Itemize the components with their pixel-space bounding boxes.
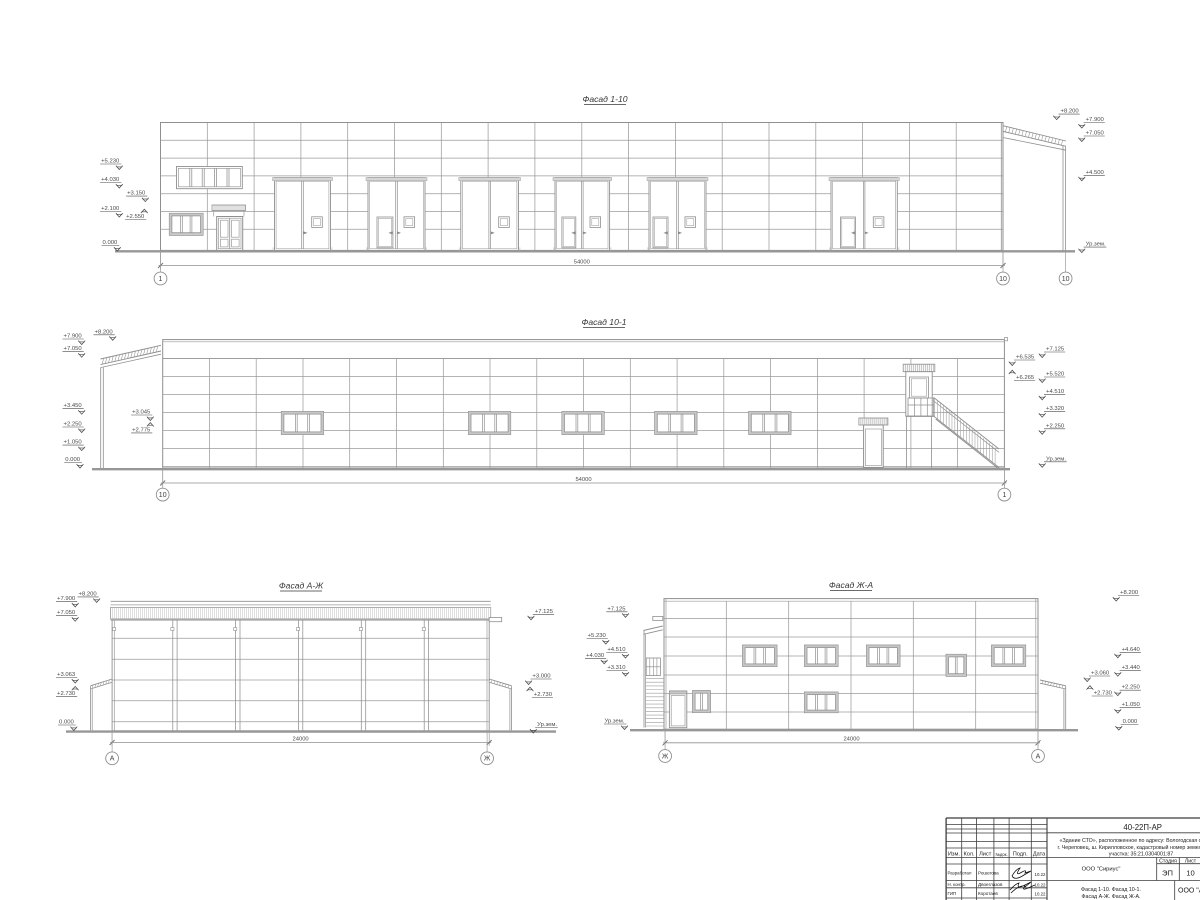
svg-text:+5.520: +5.520 (1046, 372, 1065, 378)
svg-text:+2.250: +2.250 (1046, 423, 1065, 429)
svg-text:10: 10 (1062, 276, 1070, 283)
svg-text:Ур.зем.: Ур.зем. (1086, 242, 1106, 248)
svg-text:+6.265: +6.265 (1016, 375, 1035, 381)
svg-text:0.000: 0.000 (65, 457, 80, 463)
svg-text:0.000: 0.000 (1123, 719, 1138, 725)
svg-text:+8.200: +8.200 (95, 329, 114, 335)
svg-text:+7.125: +7.125 (1046, 347, 1065, 353)
svg-text:Фасад А-Ж: Фасад А-Ж (279, 581, 324, 591)
svg-text:+2.100: +2.100 (101, 206, 120, 212)
svg-text:54000: 54000 (574, 259, 590, 265)
svg-text:+3.320: +3.320 (1046, 406, 1065, 412)
svg-text:ГИП: ГИП (948, 891, 957, 896)
svg-text:+7.125: +7.125 (535, 609, 554, 615)
svg-text:Рошегова: Рошегова (978, 871, 999, 876)
svg-text:Двоеглазов: Двоеглазов (978, 882, 1003, 887)
svg-text:+8.200: +8.200 (1120, 590, 1139, 596)
svg-text:0.000: 0.000 (59, 720, 74, 726)
svg-text:+3.045: +3.045 (132, 410, 151, 416)
svg-text:+2.250: +2.250 (64, 422, 83, 428)
svg-text:+4.510: +4.510 (1046, 389, 1065, 395)
svg-text:+4.030: +4.030 (586, 653, 605, 659)
svg-text:+4.510: +4.510 (607, 647, 626, 653)
svg-text:54000: 54000 (575, 477, 591, 483)
svg-text:+7.900: +7.900 (64, 334, 83, 340)
svg-text:«Здание СТО», расположенное по: «Здание СТО», расположенное по адресу: В… (1060, 838, 1200, 844)
svg-text:+1.050: +1.050 (64, 440, 83, 446)
svg-text:+4.500: +4.500 (1086, 170, 1105, 176)
svg-text:+7.050: +7.050 (1086, 131, 1105, 137)
svg-text:ООО "Ави: ООО "Ави (1178, 888, 1200, 895)
svg-text:Н. контр.: Н. контр. (948, 882, 966, 887)
svg-text:А: А (110, 756, 115, 763)
svg-text:+3.450: +3.450 (64, 403, 83, 409)
svg-text:Дата: Дата (1033, 852, 1046, 858)
svg-text:1: 1 (159, 276, 163, 283)
svg-text:10: 10 (999, 276, 1007, 283)
svg-text:+5.230: +5.230 (588, 633, 607, 639)
svg-text:+3.060: +3.060 (1091, 671, 1110, 677)
svg-text:+7.050: +7.050 (64, 346, 83, 352)
svg-text:ЭП: ЭП (1162, 869, 1173, 878)
svg-text:+3.063: +3.063 (57, 672, 76, 678)
svg-text:Изм.: Изм. (948, 852, 960, 858)
svg-text:Фасад Ж-А: Фасад Ж-А (829, 580, 874, 590)
svg-text:Коротаев: Коротаев (978, 891, 998, 896)
svg-text:+1.050: +1.050 (1122, 702, 1141, 708)
svg-text:10: 10 (159, 492, 167, 499)
svg-text:+2.250: +2.250 (1122, 685, 1141, 691)
svg-text:Лист: Лист (1185, 859, 1197, 865)
svg-text:+8.200: +8.200 (79, 591, 98, 597)
svg-text:Ж: Ж (484, 756, 491, 763)
svg-text:0.000: 0.000 (103, 240, 118, 246)
svg-text:+5.230: +5.230 (101, 159, 120, 165)
svg-text:+3.000: +3.000 (532, 674, 551, 680)
svg-text:Фасад 1-10. Фасад 10-1.: Фасад 1-10. Фасад 10-1. (1081, 887, 1141, 893)
svg-text:+3.150: +3.150 (127, 191, 146, 197)
svg-text:10.22: 10.22 (1035, 883, 1047, 888)
svg-text:+2.730: +2.730 (1094, 691, 1113, 697)
svg-text:+8.200: +8.200 (1061, 109, 1080, 115)
svg-text:+2.730: +2.730 (57, 691, 76, 697)
svg-text:+3.440: +3.440 (1122, 665, 1141, 671)
svg-text:40-22П-АР: 40-22П-АР (1123, 823, 1162, 832)
svg-text:А: А (1036, 753, 1041, 760)
svg-text:+2.775: +2.775 (132, 427, 151, 433)
svg-text:Фасад А-Ж. Фасад Ж-А.: Фасад А-Ж. Фасад Ж-А. (1081, 894, 1140, 900)
svg-text:г. Череповец, ш. Кирилловское,: г. Череповец, ш. Кирилловское, кадастров… (1058, 844, 1200, 851)
svg-text:10.22: 10.22 (1035, 892, 1047, 897)
svg-text:Ур.зем.: Ур.зем. (605, 719, 625, 725)
svg-text:+7.125: +7.125 (607, 606, 626, 612)
svg-text:Разработал: Разработал (948, 871, 972, 876)
svg-text:24000: 24000 (843, 737, 859, 743)
svg-text:Фасад 1-10: Фасад 1-10 (582, 94, 627, 104)
svg-text:10: 10 (1186, 869, 1194, 878)
svg-text:ООО "Сириус": ООО "Сириус" (1082, 867, 1121, 873)
svg-text:24000: 24000 (293, 736, 309, 742)
svg-text:+6.535: +6.535 (1016, 355, 1035, 361)
svg-text:Ур.зем.: Ур.зем. (537, 722, 557, 728)
svg-text:Ж: Ж (662, 753, 669, 760)
svg-text:+4.640: +4.640 (1122, 647, 1141, 653)
svg-text:+2.550: +2.550 (126, 214, 145, 220)
svg-text:10.22: 10.22 (1035, 872, 1047, 877)
svg-text:Кол.: Кол. (964, 852, 976, 858)
svg-text:+7.050: +7.050 (57, 610, 76, 616)
svg-text:Лист: Лист (979, 852, 992, 858)
svg-text:+2.730: +2.730 (534, 692, 553, 698)
svg-text:1: 1 (1002, 492, 1006, 499)
svg-text:№док.: №док. (995, 852, 1007, 857)
svg-text:+7.900: +7.900 (1086, 117, 1105, 123)
svg-text:Фасад 10-1: Фасад 10-1 (581, 317, 626, 327)
svg-text:+3.310: +3.310 (607, 665, 626, 671)
svg-text:+4.030: +4.030 (101, 177, 120, 183)
svg-text:Ур.зем.: Ур.зем. (1046, 456, 1066, 462)
svg-text:Подп.: Подп. (1013, 852, 1028, 858)
svg-text:участка: 35:21.0304001:87: участка: 35:21.0304001:87 (1109, 852, 1174, 858)
svg-text:Стадия: Стадия (1159, 859, 1177, 865)
svg-text:+7.900: +7.900 (57, 596, 76, 602)
